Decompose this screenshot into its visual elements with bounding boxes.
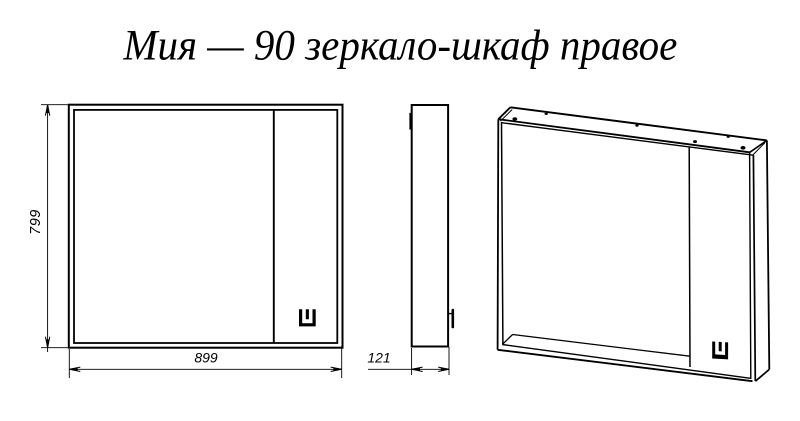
svg-text:121: 121: [367, 350, 390, 366]
svg-text:799: 799: [28, 209, 44, 235]
svg-text:899: 899: [194, 350, 218, 366]
svg-text:Мия — 90 зеркало-шкаф правое: Мия — 90 зеркало-шкаф правое: [122, 21, 677, 70]
